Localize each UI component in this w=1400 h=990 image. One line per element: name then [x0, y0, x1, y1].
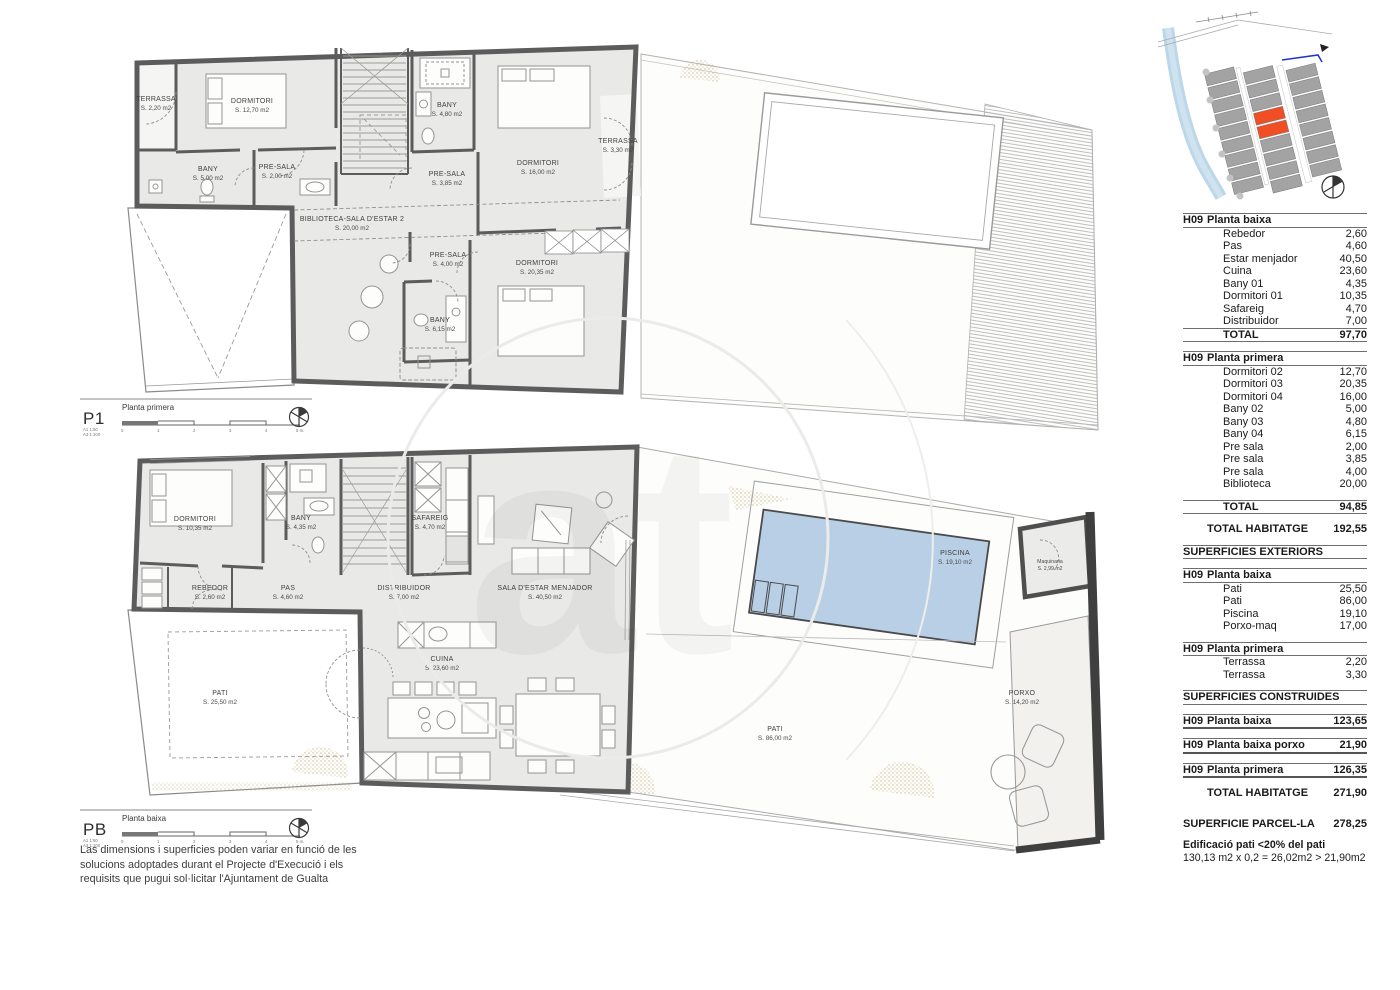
- table-row: Bany 025,00: [1183, 403, 1367, 416]
- table-row: Pre sala2,00: [1183, 441, 1367, 454]
- table-row: TOTAL94,85: [1183, 500, 1367, 515]
- pb-room-label: SAFAREIG: [411, 515, 448, 522]
- table-row: Terrassa3,30: [1183, 669, 1367, 682]
- table-row: H09Planta baixa: [1183, 568, 1367, 583]
- scale-tick: 0: [121, 428, 124, 433]
- pb-room-area: S. 7,00 m2: [389, 594, 420, 601]
- pb-floor-plan: DORMITORI S. 10,35 m2 BANY S. 4,35 m2 SA…: [80, 447, 1100, 851]
- p1-room-area: S. 6,15 m2: [425, 326, 456, 333]
- p1-room-label: BANY: [198, 166, 218, 173]
- table-row: TOTAL97,70: [1183, 328, 1367, 343]
- plan-sheet: TERRASSA S. 2,20 m2 DORMITORI S. 12,70 m…: [0, 0, 1400, 990]
- pb-room-label: PAS: [281, 585, 295, 592]
- river: [1168, 28, 1221, 197]
- table-gap: [1183, 536, 1367, 545]
- table-gap: [1183, 559, 1367, 568]
- p1-room-area: S. 3,85 m2: [432, 180, 463, 187]
- pb-room-label: PORXO: [1009, 690, 1036, 697]
- p1-room-area: S. 2,20 m2: [141, 105, 172, 112]
- table-row: TOTAL HABITATGE192,55: [1183, 523, 1367, 536]
- north-arrow-icon: [290, 408, 309, 427]
- table-row: H09Planta primera: [1183, 642, 1367, 657]
- p1-floor-plan: TERRASSA S. 2,20 m2 DORMITORI S. 12,70 m…: [80, 47, 1098, 437]
- p1-room-label: DORMITORI: [231, 98, 273, 105]
- table-row: Pre sala4,00: [1183, 466, 1367, 479]
- disclaimer-line: requisits que pugui sol·licitar l'Ajunta…: [80, 872, 357, 887]
- pb-room-area: S. 4,60 m2: [273, 594, 304, 601]
- table-row: H09Planta baixa porxo21,90: [1183, 738, 1367, 754]
- table-row: 130,13 m2 x 0,2 = 26,02m2 > 21,90m2: [1183, 852, 1367, 865]
- p1-room-label: BANY: [430, 317, 450, 324]
- table-row: Biblioteca20,00: [1183, 478, 1367, 491]
- site-north-arrow-icon: [1322, 176, 1344, 198]
- area-table: H09Planta baixaRebedor2,60Pas4,60Estar m…: [1183, 213, 1367, 864]
- p1-room-label: DORMITORI: [517, 160, 559, 167]
- table-row: Distribuidor7,00: [1183, 315, 1367, 328]
- table-row: Edificació pati <20% del pati: [1183, 839, 1367, 852]
- table-row: Estar menjador40,50: [1183, 253, 1367, 266]
- table-row: Bany 034,80: [1183, 416, 1367, 429]
- pb-room-label: BANY: [291, 515, 311, 522]
- p1-parcel: [641, 54, 1098, 430]
- pb-room-area: S. 4,70 m2: [415, 524, 446, 531]
- table-gap: [1183, 800, 1367, 809]
- table-row: Pati25,50: [1183, 583, 1367, 596]
- table-gap: [1183, 514, 1367, 523]
- pb-code: PB: [83, 820, 107, 839]
- p1-room-area: S. 2,00 m2: [262, 173, 293, 180]
- table-row: Cuina23,60: [1183, 265, 1367, 278]
- pb-parcel: [560, 447, 1100, 851]
- pb-room-label: PATI: [767, 726, 783, 733]
- p1-room-area: S. 12,70 m2: [235, 107, 269, 114]
- p1-title-block: P1 Planta primera A1 1:50 A3 1:100 0 1 2…: [80, 399, 312, 437]
- pb-room-area: S. 14,20 m2: [1005, 699, 1039, 706]
- table-gap: [1183, 830, 1367, 839]
- site-buildings: [1204, 48, 1343, 203]
- table-row: Dormitori 0212,70: [1183, 366, 1367, 379]
- p1-room-label: PRE-SALA: [259, 164, 296, 171]
- pb-room-area: S. 10,35 m2: [178, 525, 212, 532]
- p1-room-area: S. 5,00 m2: [193, 175, 224, 182]
- table-row: Pas4,60: [1183, 240, 1367, 253]
- table-row: Dormitori 0416,00: [1183, 391, 1367, 404]
- p1-wardrobes: [545, 229, 629, 254]
- scale-tick: 3: [229, 428, 232, 433]
- p1-scale-bar: 0 1 2 3 4 5 m.: [121, 421, 304, 433]
- p1-room-area: S. 3,30 m2: [603, 147, 634, 154]
- table-gap: [1183, 754, 1367, 763]
- p1-room-label: PRE-SALA: [430, 252, 467, 259]
- site-plan: [1158, 11, 1344, 202]
- pb-room-label: CUINA: [430, 656, 453, 663]
- p1-room-area: S. 16,00 m2: [521, 169, 555, 176]
- p1-code: P1: [83, 409, 105, 428]
- p1-void-patio: [128, 208, 294, 392]
- maquinaria-room: [1020, 517, 1090, 597]
- table-row: H09Planta baixa: [1183, 213, 1367, 228]
- north-arrow-icon: [290, 819, 309, 838]
- table-row: H09Planta baixa123,65: [1183, 714, 1367, 730]
- pb-room-area: S. 2,60 m2: [195, 594, 226, 601]
- pb-room-area: S. 19,10 m2: [938, 559, 972, 566]
- table-gap: [1183, 809, 1367, 818]
- site-mark: [1320, 44, 1329, 52]
- table-row: Bany 046,15: [1183, 428, 1367, 441]
- pb-room-label: PISCINA: [940, 550, 970, 557]
- blue-boundary-line: [1282, 55, 1322, 62]
- site-road: [1158, 20, 1332, 47]
- table-row: SUPERFICIE PARCEL-LA278,25: [1183, 818, 1367, 831]
- table-row: Porxo-maq17,00: [1183, 620, 1367, 633]
- table-row: Pre sala3,85: [1183, 453, 1367, 466]
- pb-pati-25: [128, 610, 362, 795]
- pb-room-label: Maquinaria: [1037, 559, 1063, 565]
- p1-pool-outline: [751, 93, 1003, 249]
- table-gap: [1183, 729, 1367, 738]
- p1-scale-a3: A3 1:100: [83, 432, 101, 437]
- table-row: Dormitori 0110,35: [1183, 290, 1367, 303]
- p1-room-label: TERRASSA: [598, 138, 638, 145]
- table-row: SUPERFICIES CONSTRUIDES: [1183, 690, 1367, 705]
- table-gap: [1183, 633, 1367, 642]
- pb-room-label: SALA D'ESTAR MENJADOR: [497, 585, 592, 592]
- p1-room-area: S. 4,00 m2: [433, 261, 464, 268]
- table-row: Bany 014,35: [1183, 278, 1367, 291]
- pb-room-label: PATI: [212, 690, 228, 697]
- survey-line: [1196, 11, 1258, 22]
- table-gap: [1183, 681, 1367, 690]
- scale-tick: 5 m.: [296, 428, 304, 433]
- scale-tick: 2: [193, 428, 196, 433]
- p1-room-label: TERRASSA: [136, 96, 176, 103]
- p1-room-label: BANY: [437, 102, 457, 109]
- p1-room-label: PRE-SALA: [429, 171, 466, 178]
- table-row: Terrassa2,20: [1183, 656, 1367, 669]
- pb-room-area: S. 23,60 m2: [425, 665, 459, 672]
- scale-tick: 1: [157, 428, 160, 433]
- p1-room-area: S. 20,00 m2: [335, 225, 369, 232]
- pb-room-area: S. 40,50 m2: [528, 594, 562, 601]
- table-row: Piscina19,10: [1183, 608, 1367, 621]
- table-row: Rebedor2,60: [1183, 228, 1367, 241]
- p1-plan-title: Planta primera: [122, 403, 175, 412]
- table-gap: [1183, 342, 1367, 351]
- table-row: H09Planta primera: [1183, 351, 1367, 366]
- disclaimer-line: solucions adoptades durant el Projecte d…: [80, 858, 357, 873]
- table-gap: [1183, 778, 1367, 787]
- p1-room-area: S. 20,35 m2: [520, 269, 554, 276]
- disclaimer-text: Las dimensions i superficies poden varia…: [80, 843, 357, 887]
- table-gap: [1183, 491, 1367, 500]
- table-row: TOTAL HABITATGE271,90: [1183, 787, 1367, 800]
- p1-room-label: DORMITORI: [516, 260, 558, 267]
- pb-room-label: DISTRIBUIDOR: [377, 585, 430, 592]
- p1-room-area: S. 4,80 m2: [432, 111, 463, 118]
- pb-plan-title: Planta baixa: [122, 814, 167, 823]
- disclaimer-line: Las dimensions i superficies poden varia…: [80, 843, 357, 858]
- scale-tick: 4: [265, 428, 268, 433]
- table-row: H09Planta primera126,35: [1183, 763, 1367, 779]
- table-row: SUPERFICIES EXTERIORS: [1183, 545, 1367, 560]
- table-row: Safareig4,70: [1183, 303, 1367, 316]
- pb-room-area: S. 2,99 m2: [1037, 566, 1062, 572]
- p1-room-label: BIBLIOTECA-SALA D'ESTAR 2: [300, 216, 404, 223]
- pb-room-area: S. 25,50 m2: [203, 699, 237, 706]
- table-gap: [1183, 705, 1367, 714]
- table-row: Dormitori 0320,35: [1183, 378, 1367, 391]
- porxo-floor: [1010, 616, 1098, 850]
- pb-room-area: S. 86,00 m2: [758, 735, 792, 742]
- pb-room-label: DORMITORI: [174, 516, 216, 523]
- pb-room-label: REBEDOR: [192, 585, 228, 592]
- table-row: Pati86,00: [1183, 595, 1367, 608]
- pb-room-area: S. 4,35 m2: [286, 524, 317, 531]
